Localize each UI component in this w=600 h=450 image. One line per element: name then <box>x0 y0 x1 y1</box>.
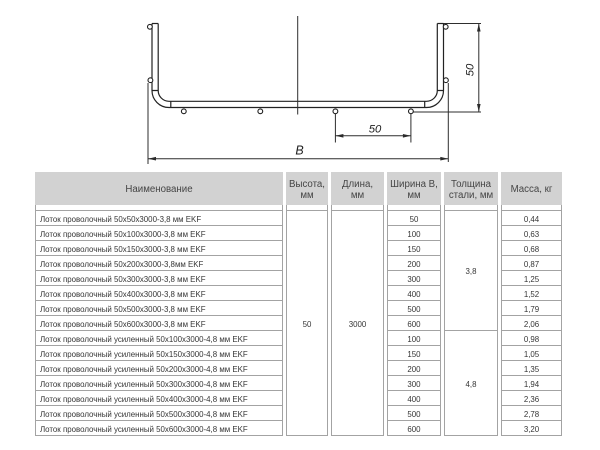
svg-text:B: B <box>295 144 303 158</box>
svg-text:50: 50 <box>369 123 382 135</box>
svg-text:50: 50 <box>465 63 477 76</box>
